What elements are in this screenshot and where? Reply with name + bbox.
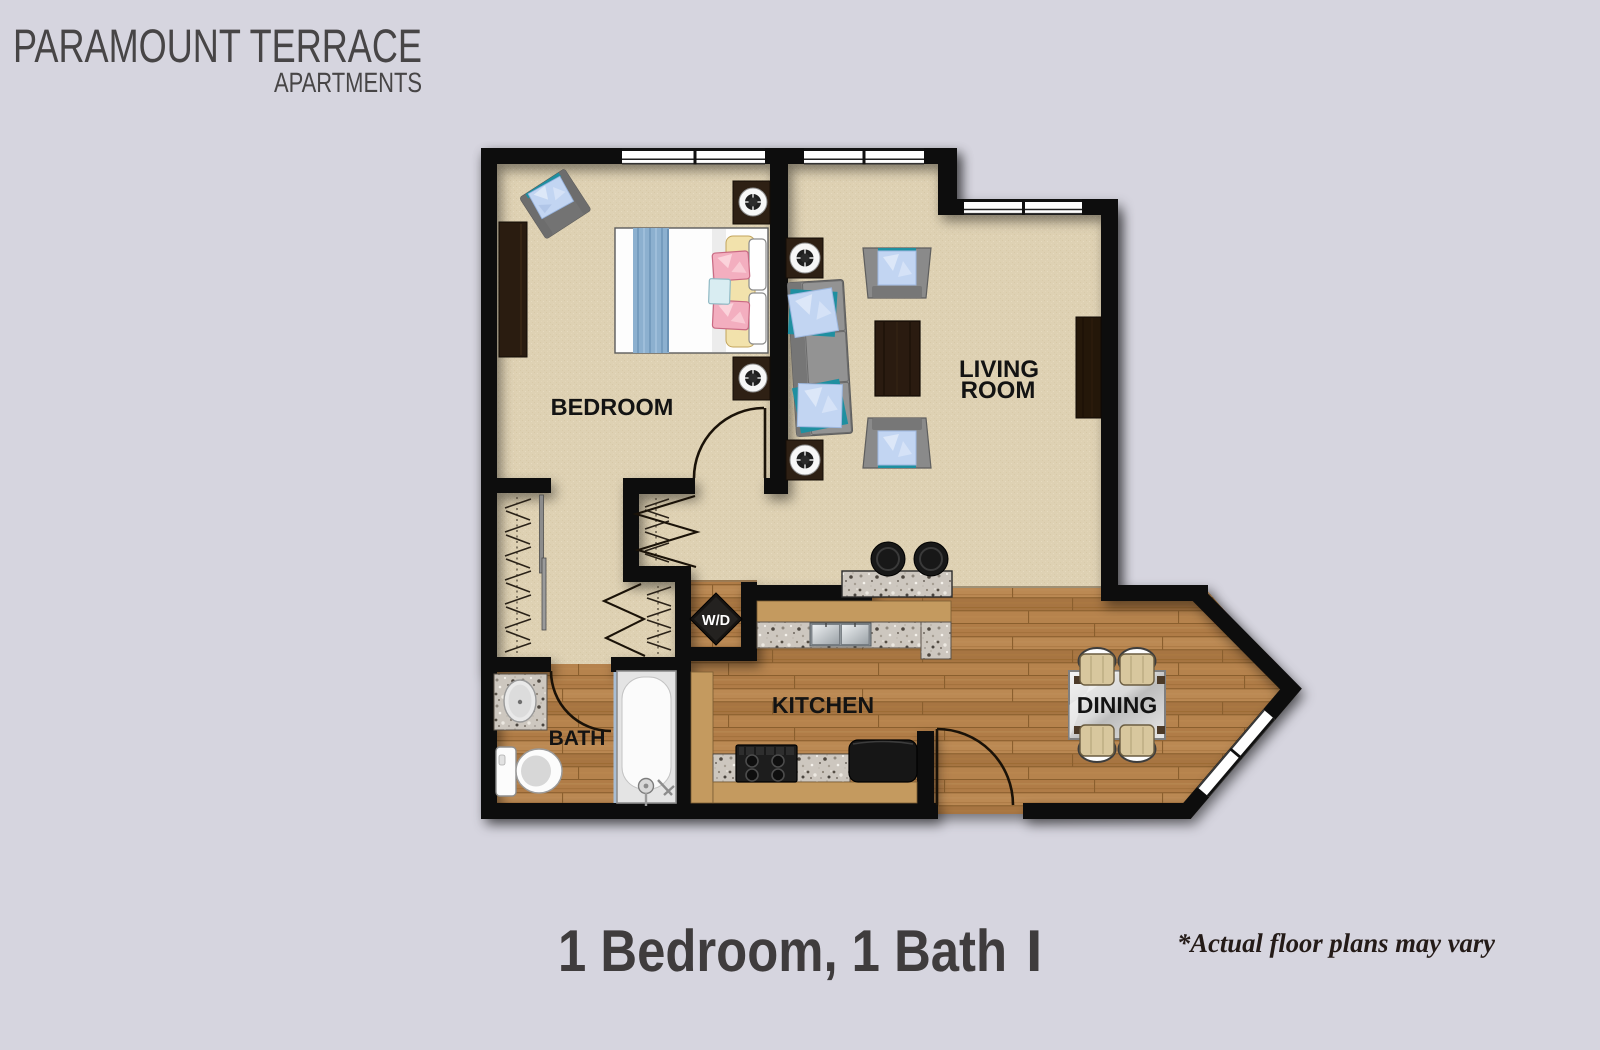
svg-text:KITCHEN: KITCHEN — [772, 692, 874, 718]
svg-text:W/D: W/D — [702, 613, 730, 629]
svg-text:I: I — [1026, 918, 1042, 984]
svg-text:DINING: DINING — [1077, 692, 1158, 718]
svg-text:*Actual floor plans may vary: *Actual floor plans may vary — [1177, 928, 1496, 958]
svg-text:APARTMENTS: APARTMENTS — [274, 67, 422, 98]
svg-text:BEDROOM: BEDROOM — [551, 394, 674, 420]
svg-text:PARAMOUNT TERRACE: PARAMOUNT TERRACE — [13, 19, 422, 72]
svg-text:1 Bedroom, 1 Bath: 1 Bedroom, 1 Bath — [558, 918, 1007, 984]
svg-text:BATH: BATH — [549, 727, 606, 750]
svg-text:ROOM: ROOM — [961, 377, 1036, 404]
